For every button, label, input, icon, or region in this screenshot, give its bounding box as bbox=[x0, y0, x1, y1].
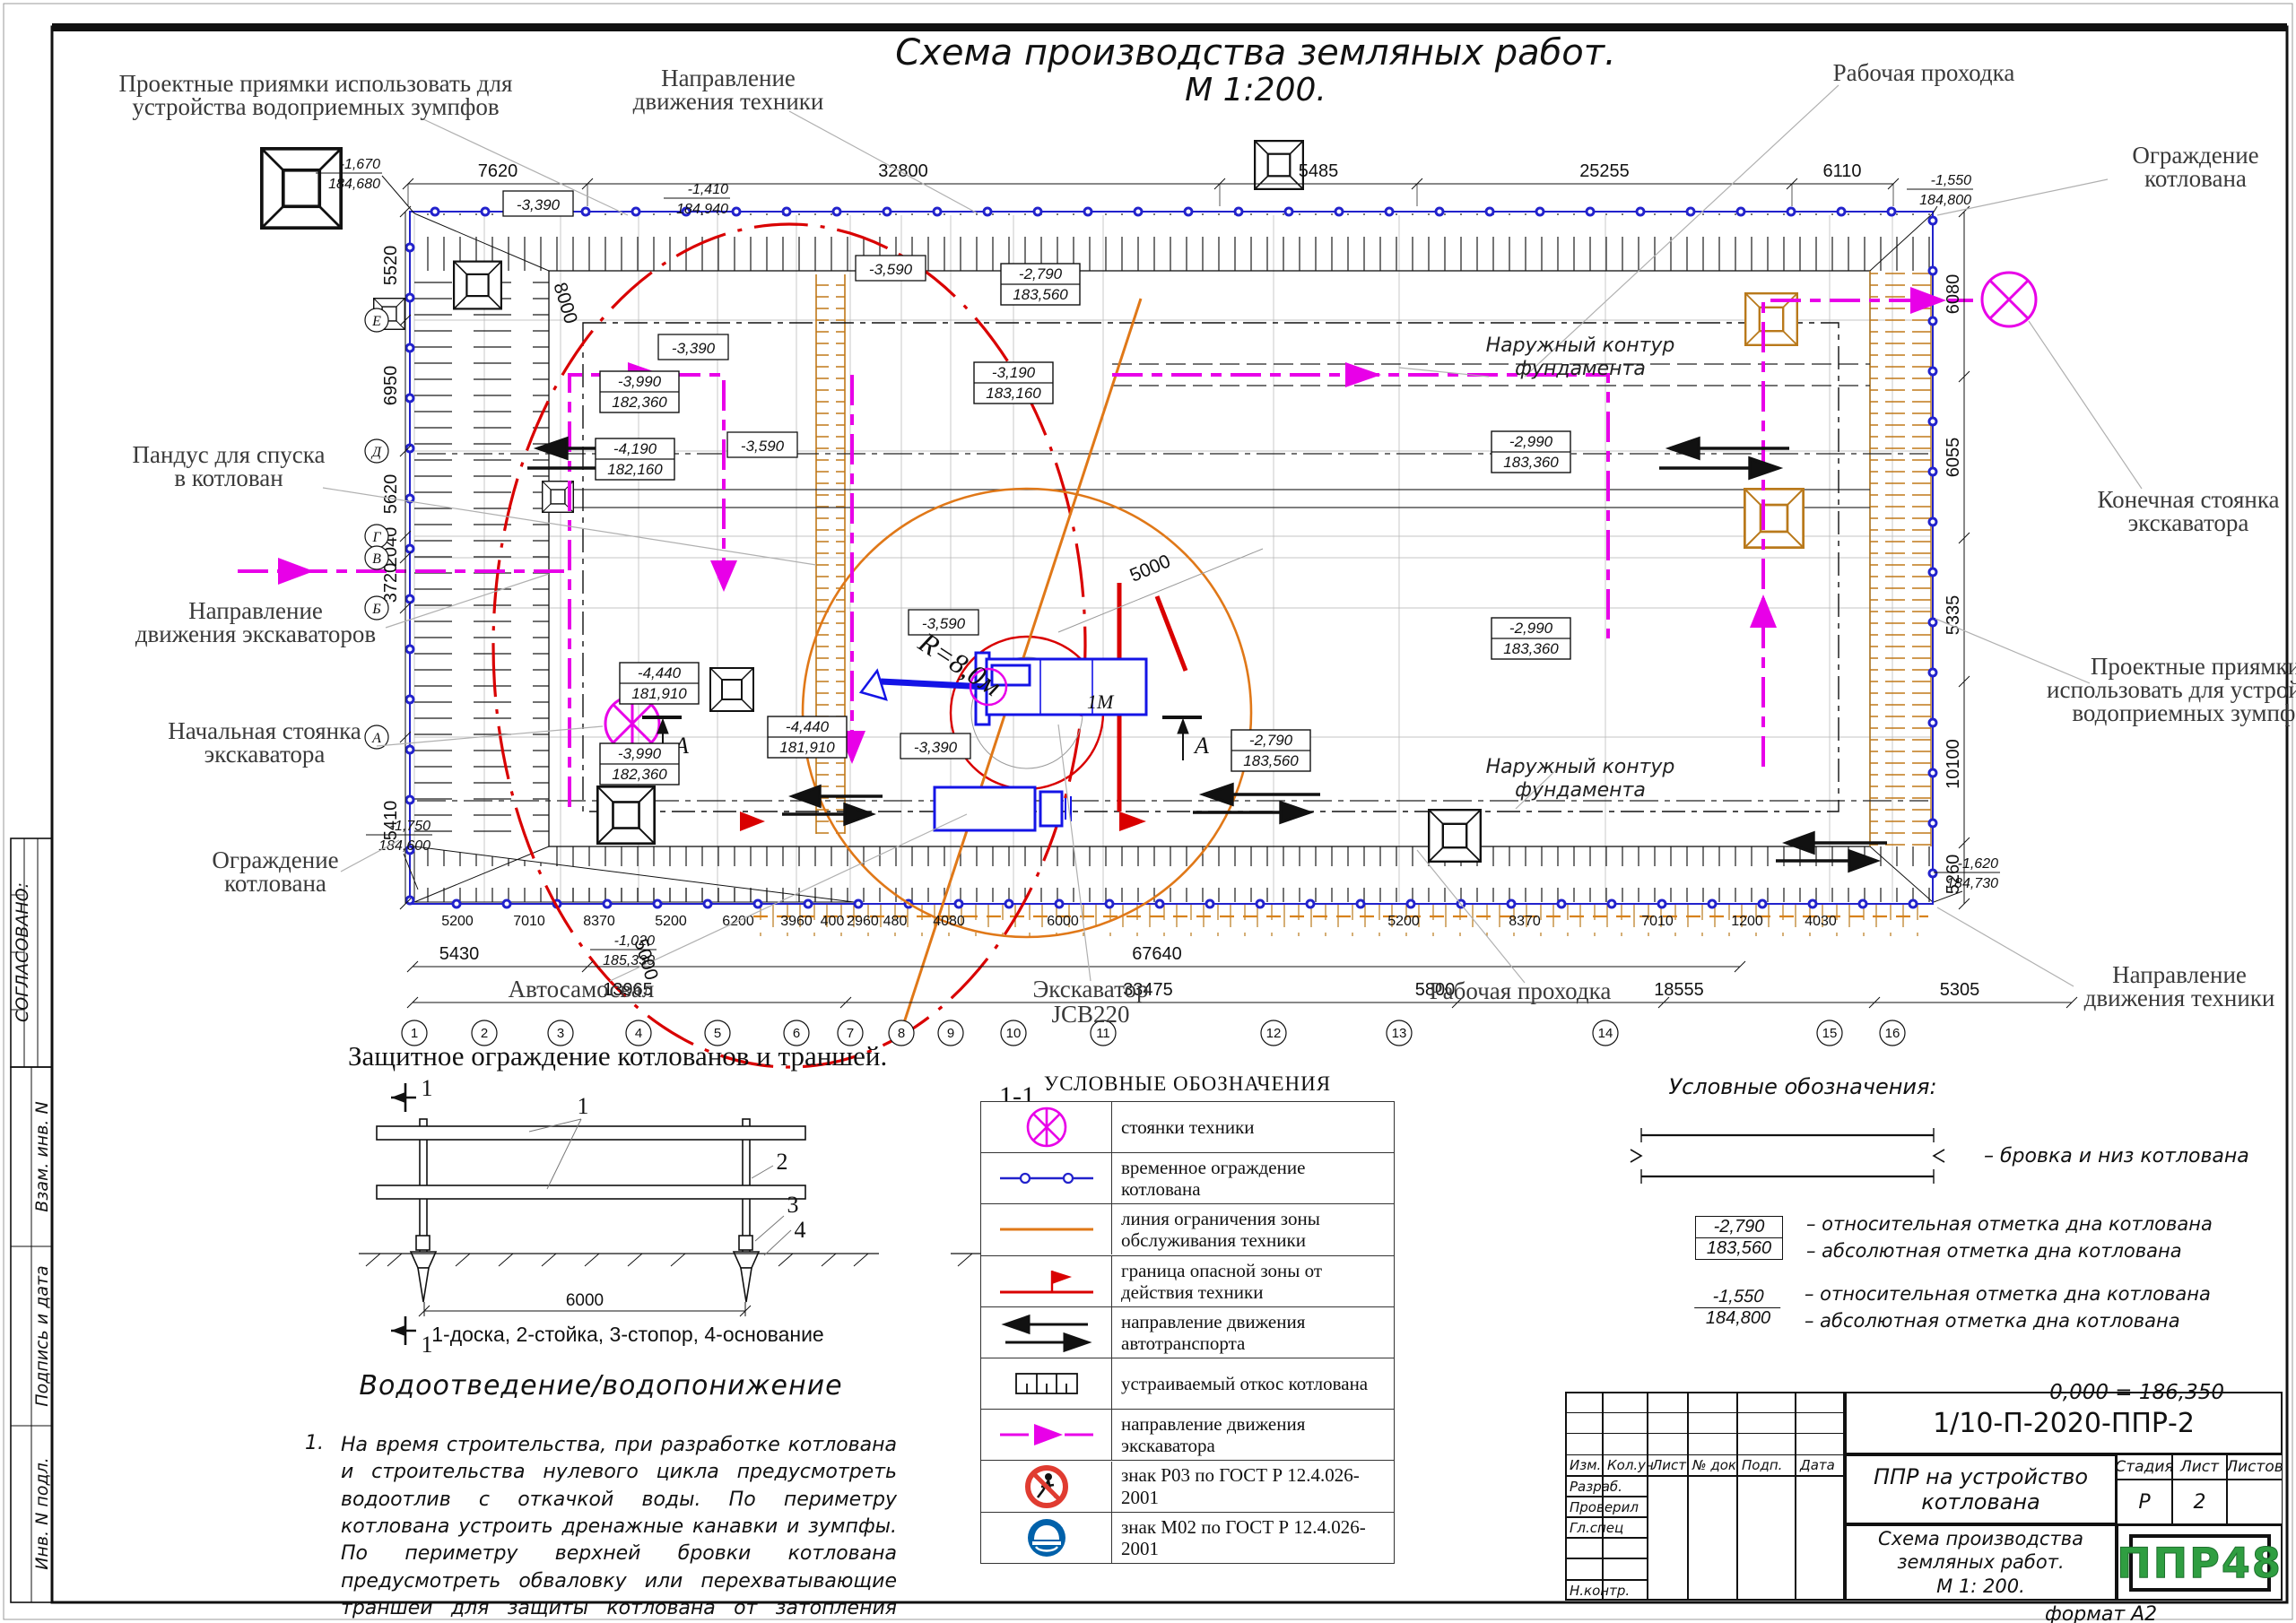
drawing-title: Схема производства земляных работ. М 1: … bbox=[1878, 1527, 2083, 1598]
svg-text:водоприемных зумпфов: водоприемных зумпфов bbox=[2072, 699, 2296, 726]
dims-bottom-total: 13965334755800185555305 bbox=[603, 980, 1979, 1000]
drainage-title: Водоотведение/водопонижение bbox=[305, 1370, 897, 1402]
svg-text:25255: 25255 bbox=[1579, 161, 1630, 181]
svg-text:181,910: 181,910 bbox=[631, 685, 687, 702]
svg-text:Наружный контур: Наружный контур bbox=[1486, 756, 1675, 778]
legend-row: граница опасной зоны от действия техники bbox=[981, 1256, 1394, 1307]
doc-number: 1/10-П-2020-ППР-2 bbox=[1933, 1408, 2195, 1439]
svg-text:5200: 5200 bbox=[441, 914, 474, 929]
legend-row: знак М02 по ГОСТ Р 12.4.026-2001 bbox=[981, 1513, 1394, 1563]
svg-text:2960: 2960 bbox=[847, 914, 879, 929]
svg-text:3: 3 bbox=[557, 1026, 564, 1041]
svg-text:8: 8 bbox=[898, 1026, 905, 1041]
legend-row: стоянки техники bbox=[981, 1102, 1394, 1153]
svg-text:10100: 10100 bbox=[1944, 739, 1963, 789]
svg-text:экскаватора: экскаватора bbox=[204, 741, 326, 768]
svg-text:Подпись и дата: Подпись и дата bbox=[32, 1265, 52, 1406]
dims-top: 7620328005485252556110 bbox=[478, 161, 1862, 181]
svg-text:5: 5 bbox=[714, 1026, 721, 1041]
sheet-number: 2 bbox=[2194, 1491, 2206, 1514]
legend-right: Условные обозначения: – бровка и низ кот… bbox=[1614, 1074, 2278, 1404]
svg-text:А: А bbox=[1193, 733, 1209, 759]
traffic-arrows bbox=[527, 438, 1887, 871]
axis-numbers-bottom: 12345678910111213141516 bbox=[411, 1026, 1900, 1041]
svg-text:в котлован: в котлован bbox=[174, 464, 283, 491]
svg-text:182,360: 182,360 bbox=[612, 766, 667, 783]
svg-text:8000: 8000 bbox=[549, 280, 581, 325]
svg-text:-2,990: -2,990 bbox=[1509, 620, 1553, 637]
svg-text:4: 4 bbox=[635, 1026, 642, 1041]
title-block: 1/10-П-2020-ППР-2 Изм. Кол.уч Лист № док… bbox=[1565, 1392, 2283, 1601]
svg-text:5305: 5305 bbox=[1940, 980, 1980, 1000]
svg-text:8370: 8370 bbox=[583, 914, 615, 929]
svg-text:32800: 32800 bbox=[878, 161, 928, 181]
legend-left: УСЛОВНЫЕ ОБОЗНАЧЕНИЯ стоянки техники вре… bbox=[980, 1072, 1395, 1564]
legend-right-title: Условные обозначения: bbox=[1614, 1074, 1991, 1099]
svg-text:18555: 18555 bbox=[1654, 980, 1704, 1000]
stamp-column: СОГЛАСОВАНО: Взам. инв. N Подпись и дата… bbox=[11, 838, 52, 1602]
svg-text:Наружный контур: Наружный контур bbox=[1486, 334, 1675, 357]
svg-text:183,160: 183,160 bbox=[986, 385, 1041, 402]
svg-text:480: 480 bbox=[883, 914, 908, 929]
svg-text:6080: 6080 bbox=[1944, 274, 1963, 315]
svg-text:котлована: котлована bbox=[224, 870, 326, 897]
svg-text:182,160: 182,160 bbox=[607, 461, 663, 478]
svg-text:5430: 5430 bbox=[439, 944, 480, 964]
svg-text:-3,990: -3,990 bbox=[618, 373, 662, 390]
svg-text:184,940: 184,940 bbox=[676, 202, 728, 217]
svg-text:184,800: 184,800 bbox=[1919, 193, 1971, 208]
svg-text:-1,750: -1,750 bbox=[390, 819, 430, 834]
svg-text:184,680: 184,680 bbox=[328, 177, 380, 192]
svg-text:184,600: 184,600 bbox=[378, 838, 430, 854]
svg-text:-1,550: -1,550 bbox=[1931, 173, 1971, 188]
svg-text:5620: 5620 bbox=[381, 474, 401, 515]
svg-text:183,360: 183,360 bbox=[1503, 640, 1559, 657]
svg-text:СОГЛАСОВАНО:: СОГЛАСОВАНО: bbox=[13, 882, 32, 1022]
svg-text:1: 1 bbox=[422, 1075, 433, 1101]
legend-row: направление движения экскаватора bbox=[981, 1410, 1394, 1461]
svg-text:4: 4 bbox=[795, 1217, 806, 1243]
svg-text:Рабочая проходка: Рабочая проходка bbox=[1430, 977, 1612, 1004]
svg-text:Экскаватор: Экскаватор bbox=[1032, 976, 1148, 1002]
dims-bottom-mid: 543067640 bbox=[439, 944, 1182, 964]
svg-text:9: 9 bbox=[947, 1026, 954, 1041]
parking-start-symbol bbox=[605, 697, 659, 751]
ppr48-logo: ППР48 bbox=[2129, 1534, 2271, 1592]
svg-text:67640: 67640 bbox=[1132, 944, 1182, 964]
svg-text:Инв. N подл.: Инв. N подл. bbox=[32, 1457, 52, 1570]
danger-zone-symbol bbox=[993, 1258, 1100, 1305]
svg-text:16: 16 bbox=[1885, 1026, 1900, 1041]
svg-text:-1,620: -1,620 bbox=[1958, 856, 1998, 872]
dims-right: 608060555335101005260 bbox=[1944, 274, 1963, 895]
svg-text:Б: Б bbox=[371, 602, 381, 617]
svg-text:-3,390: -3,390 bbox=[672, 340, 716, 357]
sheet-title: Схема производства земляных работ. bbox=[895, 32, 1616, 74]
svg-text:Е: Е bbox=[371, 314, 381, 329]
svg-text:движения экскаваторов: движения экскаваторов bbox=[135, 621, 376, 647]
drawing-sheet: СОГЛАСОВАНО: Взам. инв. N Подпись и дата… bbox=[0, 0, 2296, 1623]
svg-text:6: 6 bbox=[793, 1026, 800, 1041]
svg-text:Взам. инв. N: Взам. инв. N bbox=[32, 1101, 52, 1211]
svg-text:фундамента: фундамента bbox=[1515, 779, 1646, 802]
svg-text:181,910: 181,910 bbox=[779, 739, 835, 756]
svg-text:3: 3 bbox=[787, 1192, 799, 1218]
svg-text:7010: 7010 bbox=[513, 914, 545, 929]
svg-text:-1,410: -1,410 bbox=[688, 182, 728, 197]
svg-text:1: 1 bbox=[411, 1026, 418, 1041]
foundation-labels: Наружный контур фундамента Наружный конт… bbox=[1486, 334, 1675, 802]
svg-text:котлована: котлована bbox=[2144, 165, 2247, 192]
boxed-elevation-example: -2,790 183,560 bbox=[1695, 1216, 1783, 1260]
svg-text:182,360: 182,360 bbox=[612, 394, 667, 411]
svg-text:Рабочая проходка: Рабочая проходка bbox=[1833, 59, 2015, 86]
svg-text:4080: 4080 bbox=[933, 914, 965, 929]
traffic-direction-symbol bbox=[993, 1309, 1100, 1356]
brovka-label: – бровка и низ котлована bbox=[1984, 1145, 2249, 1167]
sign-m02-symbol bbox=[993, 1515, 1100, 1561]
drainage-note: Водоотведение/водопонижение 1. На время … bbox=[305, 1370, 897, 1623]
svg-text:JCB220: JCB220 bbox=[1051, 1001, 1129, 1028]
svg-text:-1,670: -1,670 bbox=[340, 157, 380, 172]
svg-text:-4,440: -4,440 bbox=[638, 664, 682, 681]
svg-text:фундамента: фундамента bbox=[1515, 358, 1646, 380]
sign-p03-symbol bbox=[993, 1463, 1100, 1510]
legend-row: направление движения автотранспорта bbox=[981, 1307, 1394, 1358]
legend-row: временное ограждение котлована bbox=[981, 1153, 1394, 1204]
svg-text:6000: 6000 bbox=[566, 1291, 604, 1310]
drainage-text: На время строительства, при разработке к… bbox=[341, 1432, 897, 1623]
legend-left-title: УСЛОВНЫЕ ОБОЗНАЧЕНИЯ bbox=[980, 1072, 1395, 1096]
svg-text:1: 1 bbox=[578, 1093, 589, 1119]
svg-text:-3,990: -3,990 bbox=[618, 745, 662, 762]
svg-text:4030: 4030 bbox=[1805, 914, 1837, 929]
sheet-scale: М 1:200. bbox=[1185, 72, 1326, 108]
object-title: ППР на устройство котлована bbox=[1847, 1464, 2115, 1515]
svg-text:6950: 6950 bbox=[381, 366, 401, 406]
svg-text:7620: 7620 bbox=[478, 161, 518, 181]
svg-text:6110: 6110 bbox=[1822, 161, 1861, 181]
svg-text:12: 12 bbox=[1266, 1026, 1282, 1041]
parking-end-symbol bbox=[1982, 273, 2036, 326]
legend-row: устраиваемый откос котлована bbox=[981, 1358, 1394, 1410]
legend-left-table: стоянки техники временное ограждение кот… bbox=[980, 1101, 1395, 1564]
svg-text:движения техники: движения техники bbox=[2084, 985, 2275, 1011]
svg-text:Г: Г bbox=[371, 530, 381, 545]
svg-text:5485: 5485 bbox=[1299, 161, 1339, 181]
svg-text:-4,190: -4,190 bbox=[613, 440, 657, 457]
svg-text:1200: 1200 bbox=[1731, 914, 1763, 929]
svg-text:Автосамосвал: Автосамосвал bbox=[509, 976, 655, 1002]
svg-text:-2,790: -2,790 bbox=[1019, 265, 1063, 282]
svg-text:2: 2 bbox=[777, 1149, 788, 1175]
svg-text:-3,190: -3,190 bbox=[992, 364, 1036, 381]
svg-text:13: 13 bbox=[1392, 1026, 1407, 1041]
svg-text:-2,790: -2,790 bbox=[1249, 732, 1293, 749]
svg-text:Д: Д bbox=[370, 445, 382, 460]
svg-text:экскаватора: экскаватора bbox=[2128, 509, 2249, 536]
svg-text:5000: 5000 bbox=[1126, 551, 1173, 586]
temp-fence-symbol bbox=[993, 1155, 1100, 1202]
stage-value: Р bbox=[2138, 1491, 2150, 1514]
svg-text:2: 2 bbox=[481, 1026, 488, 1041]
svg-text:-2,990: -2,990 bbox=[1509, 433, 1553, 450]
truck-graphic bbox=[935, 787, 1071, 830]
svg-text:-3,590: -3,590 bbox=[741, 438, 785, 455]
parking-symbol bbox=[993, 1104, 1100, 1150]
svg-text:движения техники: движения техники bbox=[633, 88, 824, 115]
svg-text:184,730: 184,730 bbox=[1946, 876, 1998, 891]
fence-detail: Защитное ограждение котлованов и траншей… bbox=[348, 1040, 1078, 1358]
svg-text:-4,440: -4,440 bbox=[786, 718, 830, 735]
svg-text:3960: 3960 bbox=[780, 914, 813, 929]
svg-text:-3,590: -3,590 bbox=[869, 261, 913, 278]
svg-text:Защитное ограждение котлованов: Защитное ограждение котлованов и траншей… bbox=[348, 1040, 887, 1072]
svg-text:400: 400 bbox=[821, 914, 845, 929]
svg-text:5200: 5200 bbox=[655, 914, 687, 929]
excavator-direction-symbol bbox=[993, 1411, 1100, 1458]
svg-text:8370: 8370 bbox=[1509, 914, 1541, 929]
svg-text:А: А bbox=[371, 731, 381, 746]
format-note: формат А2 bbox=[2045, 1603, 2157, 1623]
svg-text:183,360: 183,360 bbox=[1503, 454, 1559, 471]
svg-text:10: 10 bbox=[1006, 1026, 1022, 1041]
svg-text:1М: 1М bbox=[1087, 690, 1115, 713]
svg-text:7: 7 bbox=[847, 1026, 854, 1041]
svg-text:6000: 6000 bbox=[1047, 914, 1079, 929]
svg-text:15: 15 bbox=[1822, 1026, 1838, 1041]
axis-letters-left: ЕДГВБА bbox=[370, 314, 382, 746]
service-zone-symbol bbox=[993, 1206, 1100, 1253]
legend-row: линия ограничения зоны обслуживания техн… bbox=[981, 1204, 1394, 1255]
svg-text:14: 14 bbox=[1598, 1026, 1613, 1041]
svg-text:1-доска, 2-стойка, 3-стопор, 4: 1-доска, 2-стойка, 3-стопор, 4-основание bbox=[431, 1323, 823, 1346]
svg-text:В: В bbox=[372, 551, 381, 567]
excavator-graphic bbox=[861, 653, 1146, 725]
svg-text:-3,390: -3,390 bbox=[914, 739, 958, 756]
svg-text:3720: 3720 bbox=[381, 563, 401, 603]
svg-text:11: 11 bbox=[1096, 1026, 1110, 1041]
svg-text:5520: 5520 bbox=[381, 246, 401, 286]
plain-elevation-example: -1,550 184,800 bbox=[1695, 1287, 1781, 1329]
svg-text:5200: 5200 bbox=[1387, 914, 1420, 929]
svg-text:устройства водоприемных зумпфо: устройства водоприемных зумпфов bbox=[132, 93, 499, 120]
slope-symbol bbox=[993, 1360, 1100, 1407]
sump-pits-right bbox=[1744, 293, 1803, 547]
brovka-symbol bbox=[1614, 1124, 1964, 1187]
svg-text:-3,390: -3,390 bbox=[517, 196, 561, 213]
legend-row: знак Р03 по ГОСТ Р 12.4.026-2001 bbox=[981, 1461, 1394, 1512]
svg-text:7010: 7010 bbox=[1641, 914, 1674, 929]
svg-text:183,560: 183,560 bbox=[1243, 752, 1299, 769]
svg-text:183,560: 183,560 bbox=[1013, 286, 1068, 303]
svg-text:6055: 6055 bbox=[1944, 438, 1963, 478]
